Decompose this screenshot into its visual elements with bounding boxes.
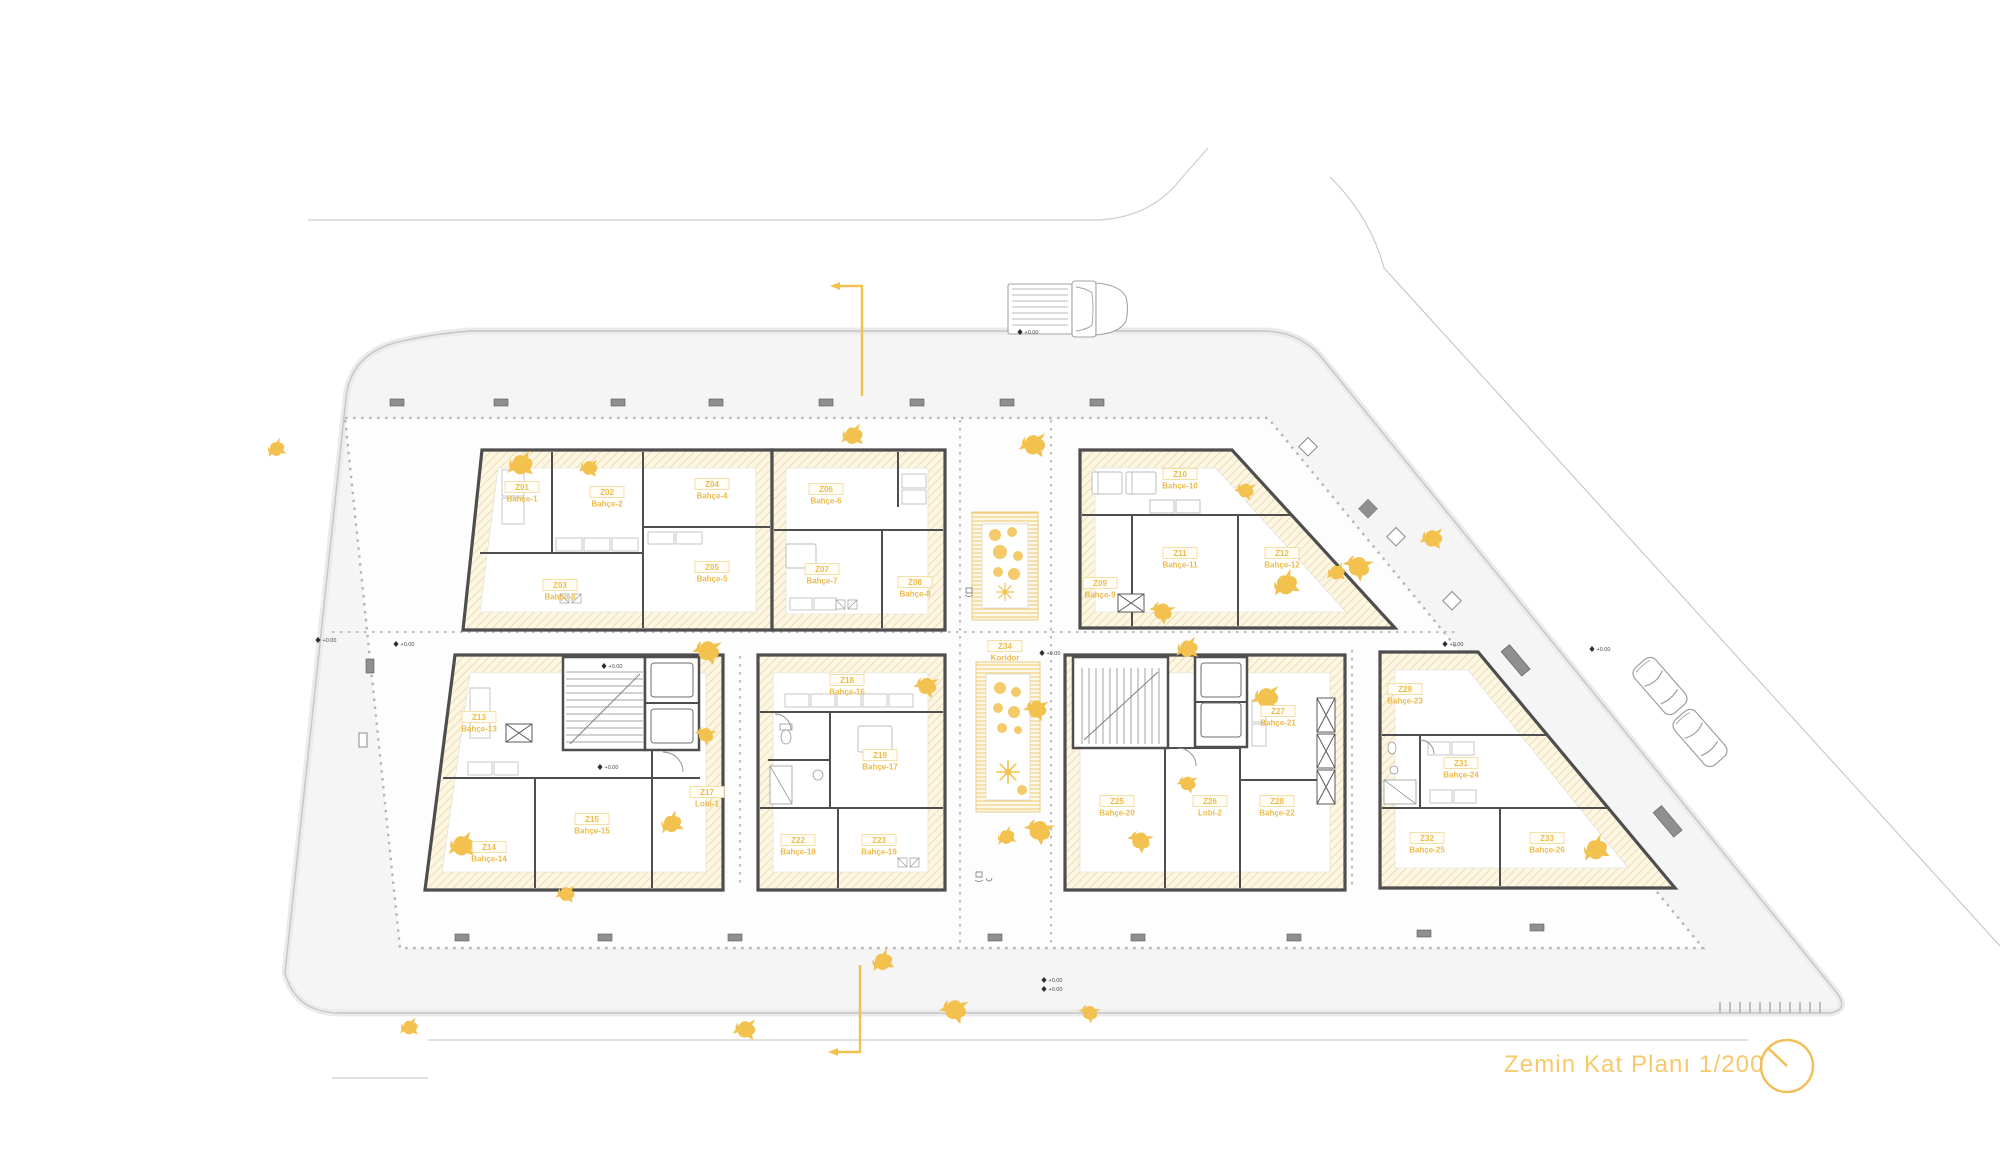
unit-label-z09: Z09Bahçe-9 — [1083, 578, 1117, 600]
unit-name: Bahçe-3 — [544, 593, 576, 602]
unit-name: Bahçe-14 — [471, 855, 507, 864]
unit-id: Z15 — [585, 815, 599, 824]
elevation-value: +0.00 — [605, 765, 619, 771]
unit-label-z08: Z08Bahçe-8 — [898, 577, 932, 599]
elevator-bank-west — [645, 657, 699, 750]
stair-core-east — [1073, 657, 1168, 748]
elevation-value: +0.00 — [323, 638, 337, 644]
unit-label-z11: Z11Bahçe-11 — [1162, 548, 1198, 570]
unit-label-z13: Z13Bahçe-13 — [461, 712, 497, 734]
unit-name: Bahçe-13 — [461, 725, 497, 734]
unit-id: Z22 — [791, 836, 805, 845]
unit-label-z27: Z27Bahçe-21 — [1260, 706, 1296, 728]
unit-label-z02: Z02Bahçe-2 — [590, 487, 624, 509]
elevation-value: +0.00 — [1597, 647, 1611, 653]
unit-label-z34: Z34Koridor — [988, 641, 1022, 663]
block-b-units-z06-z08 — [772, 450, 945, 630]
plan-title: Zemin Kat Planı 1/200 — [1504, 1051, 1765, 1078]
unit-name: Bahçe-5 — [696, 575, 728, 584]
unit-id: Z06 — [819, 485, 833, 494]
unit-name: Bahçe-7 — [806, 577, 838, 586]
unit-id: Z23 — [872, 836, 886, 845]
elevator-bank-east — [1195, 657, 1247, 747]
unit-label-z05: Z05Bahçe-5 — [695, 562, 729, 584]
truck-icon — [1008, 281, 1128, 337]
unit-label-z14: Z14Bahçe-14 — [471, 842, 507, 864]
unit-id: Z14 — [482, 843, 496, 852]
unit-name: Bahçe-9 — [1084, 591, 1116, 600]
unit-name: Lobi-1 — [695, 800, 720, 809]
unit-id: Z05 — [705, 563, 719, 572]
unit-name: Bahçe-23 — [1387, 697, 1423, 706]
stair-core-west — [563, 657, 645, 750]
unit-label-z04: Z04Bahçe-4 — [695, 479, 729, 501]
duct-shaft-strip — [1317, 698, 1335, 804]
unit-name: Bahçe-1 — [506, 495, 538, 504]
unit-name: Bahçe-8 — [899, 590, 931, 599]
unit-name: Bahçe-15 — [574, 827, 610, 836]
unit-name: Bahçe-24 — [1443, 771, 1479, 780]
floor-plan-drawing: +0.00+0.00+0.00+0.00+0.00+0.00+0.00+0.00… — [0, 0, 2000, 1153]
unit-name: Bahçe-17 — [862, 763, 898, 772]
unit-id: Z34 — [998, 642, 1012, 651]
unit-id: Z13 — [472, 713, 486, 722]
elevation-value: +0.00 — [1450, 642, 1464, 648]
unit-label-z32: Z32Bahçe-25 — [1409, 833, 1445, 855]
unit-name: Bahçe-19 — [861, 848, 897, 857]
block-f-units-z25-z28 — [1065, 655, 1345, 890]
unit-id: Z32 — [1420, 834, 1434, 843]
unit-label-z15: Z15Bahçe-15 — [574, 814, 610, 836]
unit-name: Bahçe-10 — [1162, 482, 1198, 491]
block-a-units-z01-z05 — [463, 450, 772, 630]
unit-id: Z01 — [515, 483, 529, 492]
unit-label-z33: Z33Bahçe-26 — [1529, 833, 1565, 855]
unit-name: Bahçe-4 — [696, 492, 728, 501]
unit-id: Z08 — [908, 578, 922, 587]
unit-name: Bahçe-12 — [1264, 561, 1300, 570]
unit-label-z03: Z03Bahçe-3 — [543, 580, 577, 602]
unit-id: Z10 — [1173, 470, 1187, 479]
unit-label-z28: Z28Bahçe-22 — [1259, 796, 1295, 818]
unit-label-z07: Z07Bahçe-7 — [805, 564, 839, 586]
unit-label-z31: Z31Bahçe-24 — [1443, 758, 1479, 780]
unit-id: Z04 — [705, 480, 719, 489]
unit-name: Bahçe-6 — [810, 497, 842, 506]
unit-name: Bahçe-21 — [1260, 719, 1296, 728]
unit-label-z10: Z10Bahçe-10 — [1162, 469, 1198, 491]
unit-id: Z25 — [1110, 797, 1124, 806]
unit-name: Lobi-2 — [1198, 809, 1223, 818]
unit-label-z29: Z29Bahçe-23 — [1387, 684, 1423, 706]
elevation-value: +0.00 — [1047, 651, 1061, 657]
unit-id: Z02 — [600, 488, 614, 497]
unit-id: Z29 — [1398, 685, 1412, 694]
bed-symbol — [858, 726, 892, 752]
duct-shaft — [506, 724, 532, 742]
unit-name: Bahçe-18 — [780, 848, 816, 857]
unit-label-z18: Z18Bahçe-16 — [829, 675, 865, 697]
unit-id: Z18 — [840, 676, 854, 685]
unit-id: Z11 — [1173, 549, 1187, 558]
unit-id: Z28 — [1270, 797, 1284, 806]
plant-symbol — [996, 583, 1014, 601]
unit-label-z23: Z23Bahçe-19 — [861, 835, 897, 857]
plant-symbol — [996, 760, 1019, 783]
unit-label-z19: Z19Bahçe-17 — [862, 750, 898, 772]
unit-label-z26: Z26Lobi-2 — [1193, 796, 1227, 818]
unit-name: Bahçe-11 — [1162, 561, 1198, 570]
unit-id: Z09 — [1093, 579, 1107, 588]
block-d-units-z13-z17 — [425, 655, 723, 890]
unit-id: Z17 — [700, 788, 714, 797]
unit-label-z17: Z17Lobi-1 — [690, 787, 724, 809]
elevation-value: +0.00 — [1049, 987, 1063, 993]
unit-label-z06: Z06Bahçe-6 — [809, 484, 843, 506]
unit-name: Bahçe-26 — [1529, 846, 1565, 855]
elevator-shaft — [1118, 594, 1144, 612]
elevation-value: +0.00 — [401, 642, 415, 648]
unit-id: Z27 — [1271, 707, 1285, 716]
floor-plan-sheet: +0.00+0.00+0.00+0.00+0.00+0.00+0.00+0.00… — [0, 0, 2000, 1153]
unit-name: Bahçe-25 — [1409, 846, 1445, 855]
elevation-value: +0.00 — [609, 664, 623, 670]
unit-name: Bahçe-22 — [1259, 809, 1295, 818]
unit-name: Bahçe-20 — [1099, 809, 1135, 818]
unit-name: Bahçe-16 — [829, 688, 865, 697]
unit-name: Koridor — [991, 654, 1020, 663]
unit-id: Z26 — [1203, 797, 1217, 806]
planting-bed-north — [965, 512, 1038, 620]
unit-id: Z33 — [1540, 834, 1554, 843]
unit-label-z22: Z22Bahçe-18 — [780, 835, 816, 857]
elevation-value: +0.00 — [1049, 978, 1063, 984]
unit-id: Z31 — [1454, 759, 1468, 768]
unit-id: Z19 — [873, 751, 887, 760]
unit-label-z01: Z01Bahçe-1 — [505, 482, 539, 504]
unit-id: Z03 — [553, 581, 567, 590]
unit-label-z25: Z25Bahçe-20 — [1099, 796, 1135, 818]
unit-id: Z07 — [815, 565, 829, 574]
unit-label-z12: Z12Bahçe-12 — [1264, 548, 1300, 570]
unit-id: Z12 — [1275, 549, 1289, 558]
unit-name: Bahçe-2 — [591, 500, 623, 509]
elevation-value: +0.00 — [1025, 330, 1039, 336]
